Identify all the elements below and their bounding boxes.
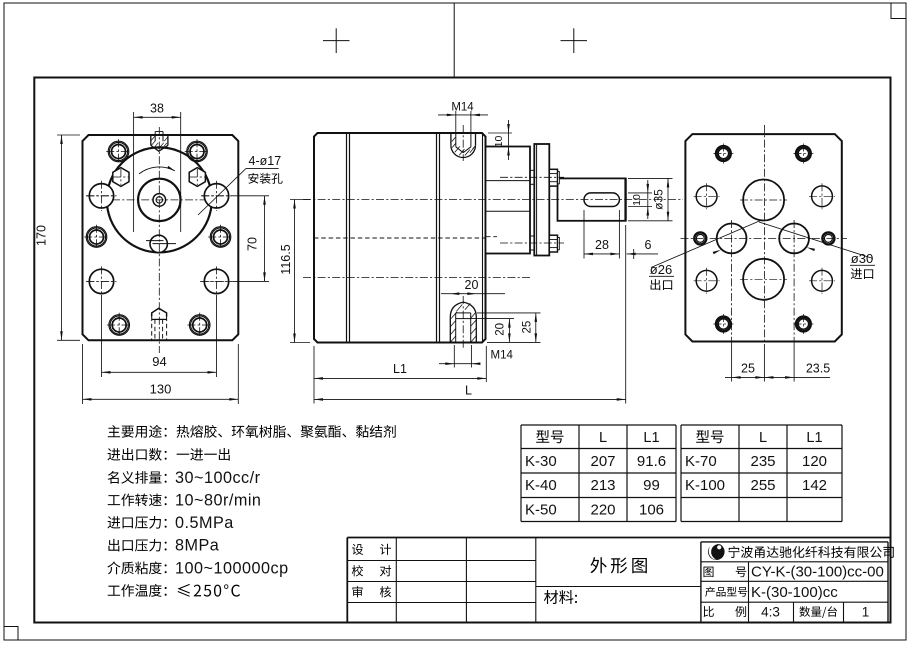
svg-text:255: 255 bbox=[750, 477, 775, 494]
svg-text:K-70: K-70 bbox=[685, 453, 717, 470]
svg-text:207: 207 bbox=[590, 453, 615, 470]
svg-text:94: 94 bbox=[152, 354, 166, 369]
svg-text:1: 1 bbox=[862, 604, 870, 619]
svg-text:M14: M14 bbox=[491, 350, 514, 362]
svg-text:120: 120 bbox=[802, 453, 827, 470]
svg-text:ø35: ø35 bbox=[652, 189, 666, 210]
svg-text:106: 106 bbox=[639, 502, 664, 519]
svg-text:4-ø17: 4-ø17 bbox=[249, 154, 282, 168]
svg-text:6: 6 bbox=[645, 238, 652, 252]
svg-text:K-(30-100)cc: K-(30-100)cc bbox=[751, 584, 838, 601]
svg-text:25: 25 bbox=[521, 321, 533, 334]
svg-text:ø30: ø30 bbox=[851, 251, 873, 266]
svg-text:CY-K-(30-100)cc-00: CY-K-(30-100)cc-00 bbox=[751, 564, 884, 581]
svg-text:K-50: K-50 bbox=[525, 502, 557, 519]
svg-text:K-40: K-40 bbox=[525, 477, 557, 494]
svg-text:L: L bbox=[599, 430, 607, 446]
svg-text:235: 235 bbox=[750, 453, 775, 470]
svg-text:38: 38 bbox=[150, 102, 164, 116]
svg-text:100~100000cp: 100~100000cp bbox=[175, 559, 289, 577]
svg-text:4:3: 4:3 bbox=[761, 604, 780, 619]
svg-text:28: 28 bbox=[595, 238, 609, 252]
svg-text:L: L bbox=[465, 384, 472, 398]
svg-text:91.6: 91.6 bbox=[637, 453, 666, 470]
svg-text:170: 170 bbox=[35, 225, 49, 246]
svg-text:10: 10 bbox=[493, 136, 505, 148]
svg-text:23.5: 23.5 bbox=[806, 361, 830, 375]
svg-text:ø26: ø26 bbox=[650, 262, 672, 277]
svg-text:K-30: K-30 bbox=[525, 453, 557, 470]
svg-text:10~80r/min: 10~80r/min bbox=[175, 491, 261, 509]
svg-text:99: 99 bbox=[643, 477, 660, 494]
svg-text:30~100cc/r: 30~100cc/r bbox=[175, 469, 261, 487]
svg-text:L: L bbox=[759, 430, 767, 446]
svg-text:20: 20 bbox=[465, 278, 479, 292]
svg-text:10: 10 bbox=[631, 194, 643, 206]
svg-text:70: 70 bbox=[246, 237, 260, 251]
svg-text:0.5MPa: 0.5MPa bbox=[175, 514, 234, 532]
svg-text:20: 20 bbox=[494, 323, 506, 336]
svg-text:L1: L1 bbox=[643, 430, 659, 446]
svg-text:220: 220 bbox=[590, 502, 615, 519]
svg-text:130: 130 bbox=[150, 382, 172, 397]
svg-text:116.5: 116.5 bbox=[279, 244, 293, 274]
svg-text:213: 213 bbox=[590, 477, 615, 494]
svg-text:142: 142 bbox=[802, 477, 827, 494]
svg-text:M14: M14 bbox=[451, 102, 474, 114]
svg-text:8MPa: 8MPa bbox=[175, 537, 219, 555]
svg-text:L1: L1 bbox=[806, 430, 822, 446]
svg-text:L1: L1 bbox=[393, 362, 407, 376]
svg-text:25: 25 bbox=[741, 361, 755, 375]
svg-text:K-100: K-100 bbox=[685, 477, 725, 494]
